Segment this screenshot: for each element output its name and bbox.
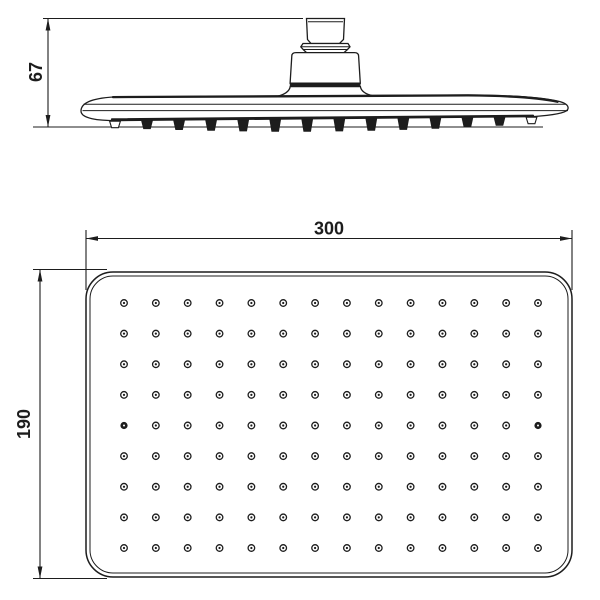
side-nozzle-tab [430,118,441,128]
side-nozzle-tab [238,120,249,131]
side-nozzle-tab [366,119,377,131]
side-view-group: 67 [26,19,568,132]
connector-body [290,53,360,84]
nozzle-accent-dot [120,422,127,429]
side-nozzle-tab [174,121,185,130]
inlet-connector [278,19,374,97]
dim-67-label: 67 [26,62,46,82]
side-nozzle-tab [398,119,409,130]
side-nozzle-tab [206,120,217,130]
side-nozzle-tab [526,117,537,124]
showerhead-plan-face [86,272,572,577]
plan-view-group: 300 190 [14,219,572,579]
nozzle-accent-dot [534,422,541,429]
side-nozzle-tab [142,121,153,129]
dim-190-arrow-down-icon [38,567,43,579]
side-nozzle-tab [110,121,121,128]
side-nozzle-tab [462,118,473,127]
dim-190-label: 190 [14,409,34,439]
technical-drawing-canvas: 67 [0,0,600,600]
dim-67-arrow-down-icon [46,115,51,127]
dim-300-label: 300 [314,219,344,239]
connector-flange [301,44,350,53]
technical-drawing-page: 67 [0,0,600,600]
showerhead-side-profile [81,19,568,132]
side-nozzle-tab [334,119,345,131]
dim-67-arrow-up-icon [46,19,51,31]
side-nozzle-tab [494,118,505,126]
dim-300-arrow-left-icon [86,236,98,241]
dim-300-arrow-right-icon [560,236,572,241]
side-nozzle-tab [270,120,281,132]
dim-190-arrow-up-icon [38,270,43,282]
side-nozzle-tab [302,119,313,131]
